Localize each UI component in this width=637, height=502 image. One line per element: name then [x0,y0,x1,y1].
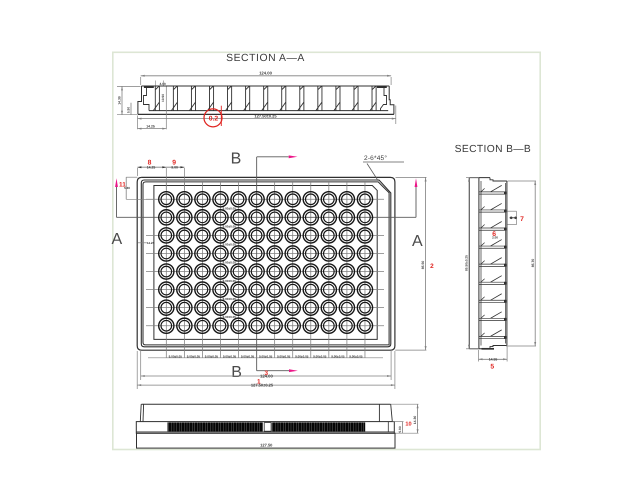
svg-text:85.70: 85.70 [531,259,535,268]
svg-text:9.00±0.05: 9.00±0.05 [223,261,237,265]
svg-text:3: 3 [265,370,269,377]
svg-text:9.00±0.05: 9.00±0.05 [313,354,327,358]
svg-text:9.00±0.05: 9.00±0.05 [223,279,237,283]
svg-text:127.50: 127.50 [260,442,273,447]
svg-text:B: B [231,150,242,167]
svg-text:SECTION A—A: SECTION A—A [226,53,305,64]
svg-text:8: 8 [148,160,152,167]
svg-text:2: 2 [430,263,434,270]
svg-text:1: 1 [257,378,261,385]
svg-text:5.90: 5.90 [127,107,131,113]
svg-text:SECTION B—B: SECTION B—B [455,144,532,155]
svg-text:9.00±0.05: 9.00±0.05 [223,243,237,247]
svg-text:5: 5 [490,363,494,370]
svg-text:85.50: 85.50 [421,261,425,270]
svg-text:5.60: 5.60 [124,186,130,190]
svg-text:127.50±0.25: 127.50±0.25 [251,383,274,388]
svg-text:A: A [412,233,423,250]
svg-text:2.00: 2.00 [492,235,498,239]
svg-text:9.00±0.05: 9.00±0.05 [277,354,291,358]
svg-text:0.2: 0.2 [209,115,219,122]
svg-text:7: 7 [520,216,524,223]
svg-text:14.25: 14.25 [146,124,155,128]
svg-text:B: B [231,364,242,381]
svg-text:9.00±0.05: 9.00±0.05 [223,225,237,229]
svg-text:A: A [111,231,122,248]
svg-text:9: 9 [172,160,176,167]
svg-text:10: 10 [405,421,411,427]
svg-text:9.00±0.05: 9.00±0.05 [223,297,237,301]
svg-text:127.50±0.25: 127.50±0.25 [254,114,277,119]
svg-text:124.00: 124.00 [259,71,272,76]
svg-text:9.00±0.05: 9.00±0.05 [169,354,183,358]
svg-text:14.30: 14.30 [413,416,417,425]
svg-text:85.50±0.25: 85.50±0.25 [465,255,469,271]
svg-text:14.55: 14.55 [489,358,498,362]
svg-text:4.00: 4.00 [159,82,165,86]
svg-text:9.00±0.05: 9.00±0.05 [331,354,345,358]
svg-text:9.00±0.05: 9.00±0.05 [205,354,219,358]
svg-text:9.00±0.05: 9.00±0.05 [223,207,237,211]
svg-text:14.30: 14.30 [118,96,122,105]
svg-text:10.90: 10.90 [161,94,165,102]
svg-text:14.25: 14.25 [147,241,155,245]
svg-text:9.00±0.05: 9.00±0.05 [259,354,273,358]
svg-text:9.00±0.05: 9.00±0.05 [241,354,255,358]
svg-text:9.00±0.05: 9.00±0.05 [223,315,237,319]
svg-text:9.00±0.05: 9.00±0.05 [223,354,237,358]
svg-text:9.00±0.05: 9.00±0.05 [187,354,201,358]
svg-text:9.00±0.05: 9.00±0.05 [349,354,363,358]
svg-text:9.00±0.05: 9.00±0.05 [295,354,309,358]
svg-text:2-6*45°: 2-6*45° [364,155,387,162]
svg-text:5.90: 5.90 [398,426,402,432]
